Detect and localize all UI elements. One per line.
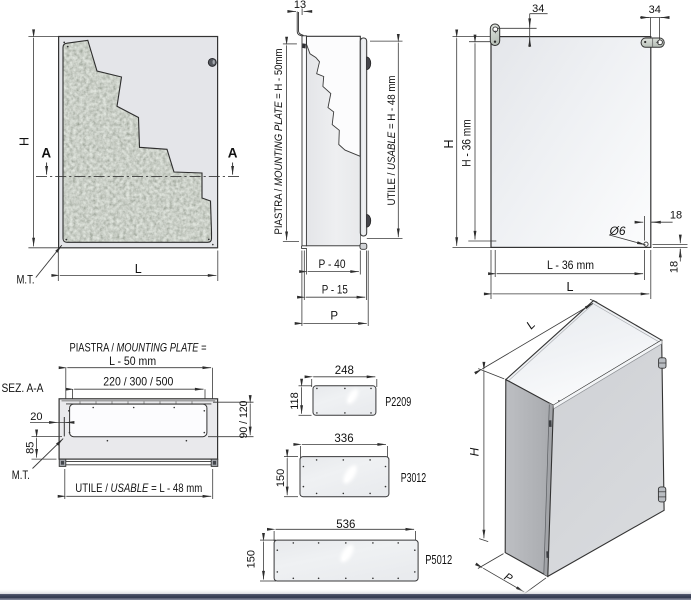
svg-text:L: L bbox=[567, 280, 574, 294]
svg-text:H: H bbox=[442, 139, 456, 148]
svg-text:34: 34 bbox=[649, 4, 661, 16]
svg-text:P - 40: P - 40 bbox=[319, 259, 346, 271]
svg-text:220 / 300 / 500: 220 / 300 / 500 bbox=[103, 374, 173, 388]
svg-text:PIASTRA / MOUNTING PLATE = H -: PIASTRA / MOUNTING PLATE = H - 50mm bbox=[273, 49, 285, 235]
svg-text:85: 85 bbox=[25, 442, 37, 454]
svg-text:A: A bbox=[228, 146, 238, 161]
svg-text:SEZ. A-A: SEZ. A-A bbox=[2, 383, 44, 395]
svg-text:L: L bbox=[135, 262, 142, 276]
svg-text:UTILE / USABLE = H - 48 mm: UTILE / USABLE = H - 48 mm bbox=[386, 76, 398, 206]
svg-text:P5012: P5012 bbox=[425, 553, 452, 567]
svg-text:H - 36 mm: H - 36 mm bbox=[462, 119, 474, 167]
svg-text:118: 118 bbox=[289, 392, 301, 410]
svg-text:18: 18 bbox=[670, 209, 682, 221]
svg-text:P2209: P2209 bbox=[385, 395, 411, 409]
svg-text:150: 150 bbox=[246, 550, 258, 568]
svg-text:A: A bbox=[41, 146, 51, 161]
svg-text:90 / 120: 90 / 120 bbox=[238, 401, 250, 439]
svg-text:13: 13 bbox=[294, 0, 306, 11]
svg-text:M.T.: M.T. bbox=[12, 470, 30, 482]
svg-text:248: 248 bbox=[335, 365, 354, 377]
svg-text:PIASTRA / MOUNTING PLATE =: PIASTRA / MOUNTING PLATE = bbox=[70, 341, 207, 355]
svg-text:18: 18 bbox=[668, 261, 680, 273]
svg-text:336: 336 bbox=[334, 433, 353, 445]
svg-text:L: L bbox=[523, 317, 538, 332]
svg-text:P: P bbox=[502, 571, 515, 585]
svg-text:P: P bbox=[330, 311, 338, 323]
svg-text:H: H bbox=[18, 137, 32, 146]
svg-text:H: H bbox=[468, 447, 482, 456]
svg-text:150: 150 bbox=[275, 469, 287, 487]
svg-text:P - 15: P - 15 bbox=[322, 285, 348, 297]
svg-text:L - 36 mm: L - 36 mm bbox=[547, 260, 594, 272]
svg-text:20: 20 bbox=[30, 411, 42, 423]
svg-text:UTILE / USABLE = L - 48 mm: UTILE / USABLE = L - 48 mm bbox=[75, 481, 202, 495]
svg-text:34: 34 bbox=[532, 3, 544, 15]
svg-text:L - 50 mm: L - 50 mm bbox=[109, 354, 156, 368]
svg-text:P3012: P3012 bbox=[401, 471, 427, 485]
svg-text:M.T.: M.T. bbox=[17, 275, 35, 287]
